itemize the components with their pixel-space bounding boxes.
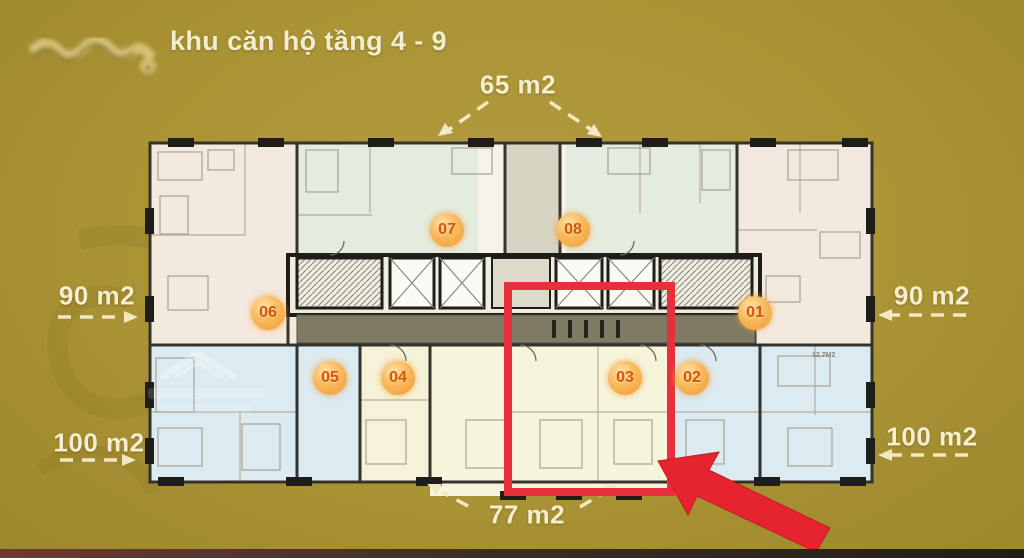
unit-badge-02: 02	[675, 361, 709, 395]
building-core	[288, 255, 760, 343]
unit-badge-07: 07	[430, 213, 464, 247]
area-label-right-low: 100 m2	[886, 422, 977, 453]
unit-badge-08: 08	[556, 213, 590, 247]
area-label-left-mid: 90 m2	[59, 281, 135, 312]
area-label-top: 65 m2	[480, 70, 556, 101]
page-title: khu căn hộ tầng 4 - 9	[170, 26, 447, 57]
unit-badge-01: 01	[738, 296, 772, 330]
corridor	[297, 315, 755, 343]
area-label-right-mid: 90 m2	[894, 281, 970, 312]
bottom-strip	[0, 549, 1024, 558]
area-label-left-low: 100 m2	[53, 428, 144, 459]
apartment-floorplan-flyer: khu căn hộ tầng 4 - 9 65 m2 90 m2 100 m2…	[0, 0, 1024, 558]
unit-badge-03: 03	[608, 361, 642, 395]
room-area-note: 12.7M2	[812, 352, 835, 359]
unit-badge-06: 06	[251, 296, 285, 330]
unit-badge-04: 04	[381, 361, 415, 395]
script-watermark	[32, 41, 156, 74]
area-label-bottom: 77 m2	[489, 500, 565, 531]
unit-badge-05: 05	[313, 361, 347, 395]
